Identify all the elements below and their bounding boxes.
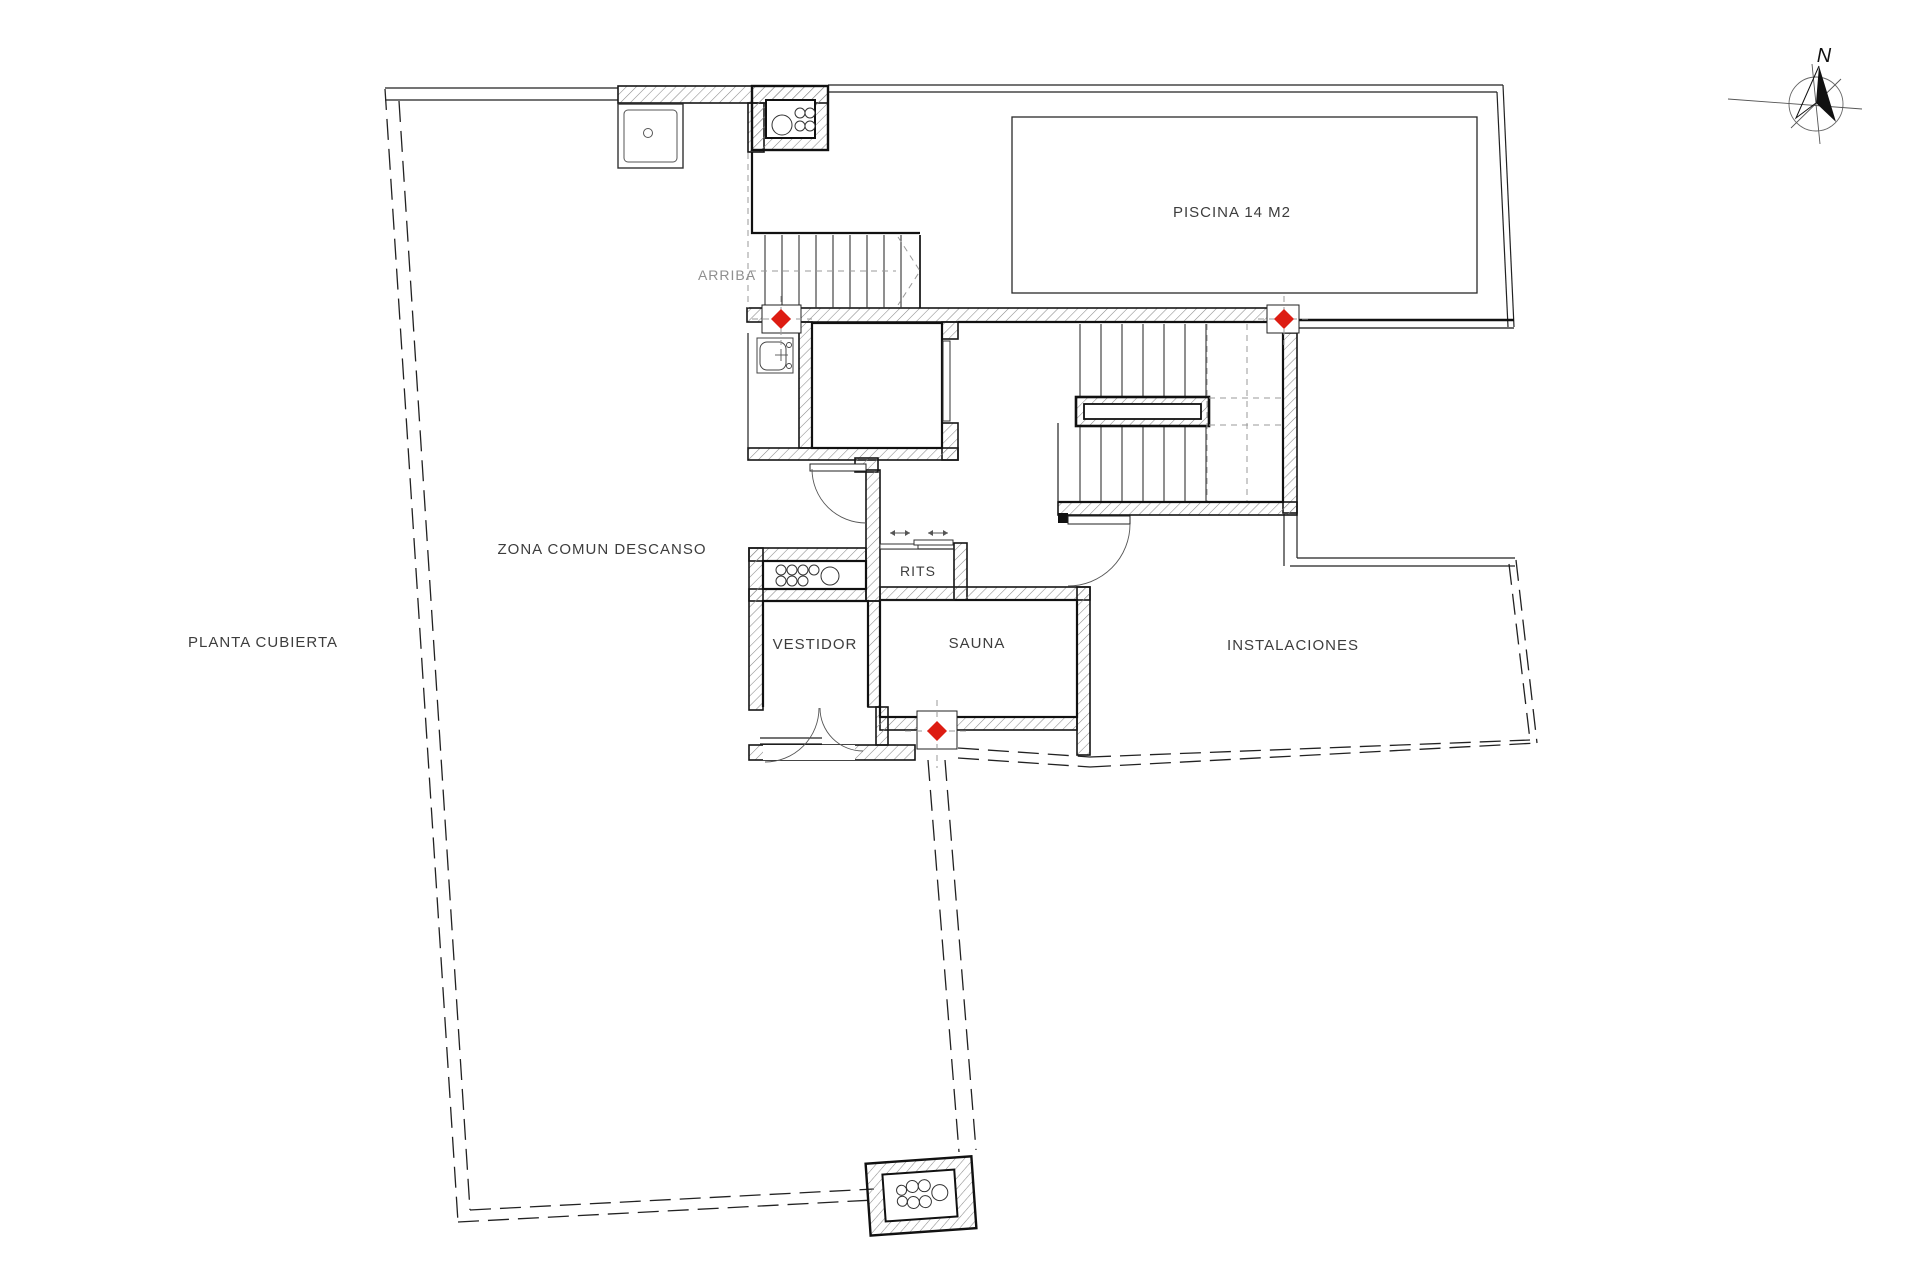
north-arrow-icon <box>1816 66 1836 122</box>
door-lift-sliding <box>943 341 950 421</box>
wall-sauna-bottom <box>880 717 1077 730</box>
arriba-label: ARRIBA <box>698 267 756 283</box>
wall-vestidor-left <box>749 548 763 710</box>
wall-rits-left <box>866 470 880 601</box>
fixtures <box>618 86 976 1236</box>
wall-below-pool <box>747 308 1283 322</box>
flue-shaft-bottom-icon <box>866 1156 977 1235</box>
sliding-arrow-icon <box>890 530 910 536</box>
wall-lift-right-top <box>942 322 958 339</box>
vestidor-outline <box>763 601 868 707</box>
wall-lobby-left <box>799 322 812 448</box>
flue-shaft-top-icon <box>752 86 828 150</box>
room-label-instalaciones: INSTALACIONES <box>1227 637 1359 654</box>
shower-tray-icon <box>618 104 683 168</box>
terrace-boundary <box>385 85 1537 1222</box>
floor-plan-page: N PLANTA CUBIERTA ZONA COMUN DESCANSO PI… <box>0 0 1920 1280</box>
room-label-rits: RITS <box>900 563 936 579</box>
sliding-arrow-icon <box>928 530 948 536</box>
wall-stair-right <box>1283 333 1297 513</box>
wall-step-cap <box>1058 513 1068 523</box>
wall-stair-bottom <box>1058 502 1297 515</box>
north-compass: N <box>1728 45 1862 144</box>
wall-sauna-right <box>1077 587 1090 755</box>
wall-connector <box>876 707 888 745</box>
wash-basin-icon <box>757 338 793 373</box>
wall-vestidor-sauna <box>868 601 880 707</box>
lift-shaft-outline <box>812 323 942 448</box>
wall-conduit-top <box>749 548 866 561</box>
plan-title: PLANTA CUBIERTA <box>188 634 338 651</box>
stair-main-lower-flight <box>1058 423 1206 502</box>
room-outlines <box>748 322 1283 717</box>
stair-handrail <box>1076 397 1209 426</box>
room-label-piscina: PISCINA 14 M2 <box>1173 204 1291 221</box>
wall-conduit-bottom <box>749 589 866 601</box>
stair-main-upper-flight <box>1080 324 1206 397</box>
door-landing-instalaciones <box>1068 516 1130 586</box>
stair-upper <box>748 152 920 308</box>
floor-plan-drawing: N PLANTA CUBIERTA ZONA COMUN DESCANSO PI… <box>0 0 1920 1280</box>
room-label-sauna: SAUNA <box>949 635 1006 652</box>
door-lobby <box>810 464 866 523</box>
door-rits-sliding <box>880 530 953 549</box>
sauna-outline <box>880 600 1077 717</box>
stair-main <box>1058 324 1281 502</box>
north-label: N <box>1817 45 1832 67</box>
wall-lobby-bottom <box>748 448 958 460</box>
room-label-vestidor: VESTIDOR <box>773 636 858 653</box>
markers <box>752 296 1310 768</box>
room-label-zona-comun: ZONA COMUN DESCANSO <box>497 541 706 558</box>
wall-sauna-top <box>880 587 1090 600</box>
conduit-shaft-icon <box>763 561 866 589</box>
